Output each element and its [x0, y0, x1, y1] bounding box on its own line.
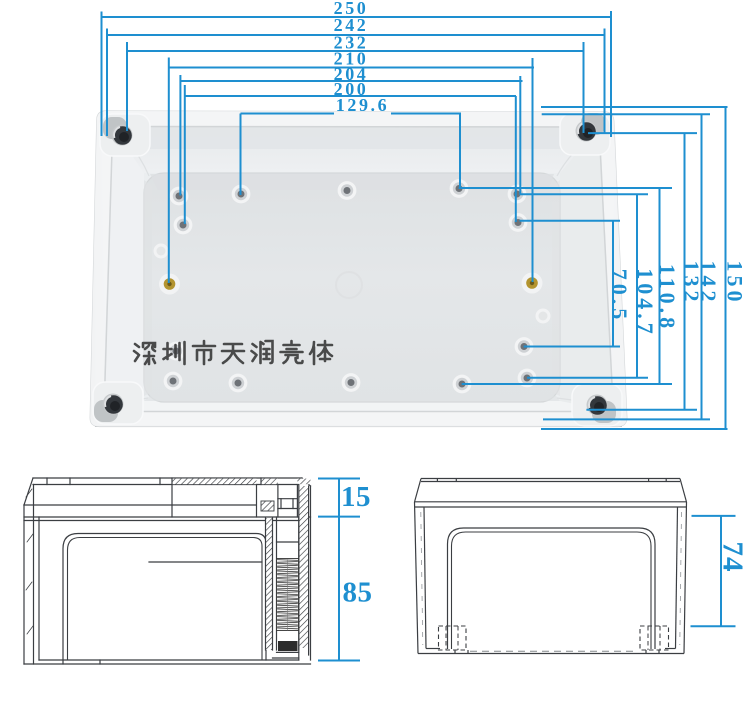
- svg-text:150: 150: [723, 261, 748, 306]
- svg-text:70.5: 70.5: [607, 269, 632, 324]
- svg-text:74: 74: [717, 542, 749, 573]
- svg-text:85: 85: [343, 577, 373, 609]
- svg-text:15: 15: [341, 481, 371, 513]
- svg-text:104.7: 104.7: [633, 268, 658, 338]
- svg-text:129.6: 129.6: [336, 95, 390, 115]
- svg-text:110.8: 110.8: [655, 264, 680, 332]
- svg-text:142: 142: [696, 261, 721, 306]
